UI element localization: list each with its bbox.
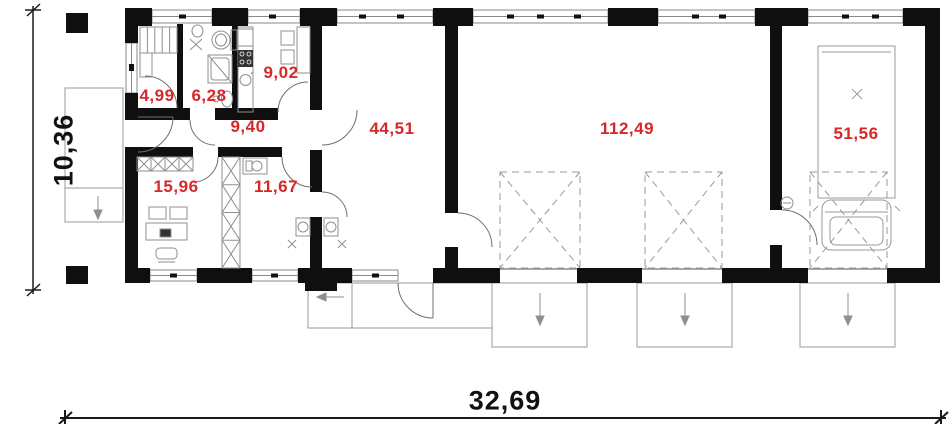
room-area-label-wardrobe: 4,99 bbox=[139, 86, 174, 106]
room-area-label-main-garage: 112,49 bbox=[600, 119, 654, 139]
room-area-label-bathroom: 6,28 bbox=[191, 86, 226, 106]
utility-sink-icon bbox=[243, 158, 267, 174]
floor-plan-drawing bbox=[0, 0, 952, 424]
shower-icon bbox=[208, 55, 232, 83]
stove-icon bbox=[238, 50, 253, 67]
dimension-line-vertical bbox=[25, 4, 41, 296]
room-area-label-kitchen: 9,02 bbox=[263, 63, 298, 83]
kitchen-sink-icon bbox=[240, 72, 253, 86]
closet-shelves-icon bbox=[140, 27, 177, 77]
porch-entry-arrow-icon bbox=[94, 196, 102, 219]
garage-door-marker bbox=[500, 172, 887, 268]
interior-walls bbox=[125, 24, 782, 268]
room-area-label-office: 15,96 bbox=[153, 177, 198, 197]
room-area-label-side-garage: 51,56 bbox=[833, 124, 878, 144]
room-area-label-living-room: 44,51 bbox=[369, 119, 414, 139]
floor-plan: 4,99 6,28 9,02 9,40 15,96 11,67 44,51 11… bbox=[0, 0, 952, 424]
driveway-pad bbox=[492, 283, 895, 347]
kitchen-counter bbox=[238, 27, 253, 112]
water-heater-icon bbox=[781, 197, 793, 209]
toilet-icon bbox=[192, 25, 237, 50]
desk-icon bbox=[146, 207, 187, 262]
driveway-arrow-icon bbox=[536, 293, 852, 325]
overall-depth-dimension: 10,36 bbox=[49, 114, 80, 187]
floor-drain-icon bbox=[190, 39, 202, 50]
overall-width-dimension: 32,69 bbox=[469, 386, 542, 417]
room-area-label-utility: 11,67 bbox=[254, 177, 298, 197]
wardrobe-cabinet-icon bbox=[137, 157, 240, 268]
room-area-label-hall: 9,40 bbox=[230, 117, 265, 137]
terrace-entry-arrow-icon bbox=[317, 293, 344, 301]
